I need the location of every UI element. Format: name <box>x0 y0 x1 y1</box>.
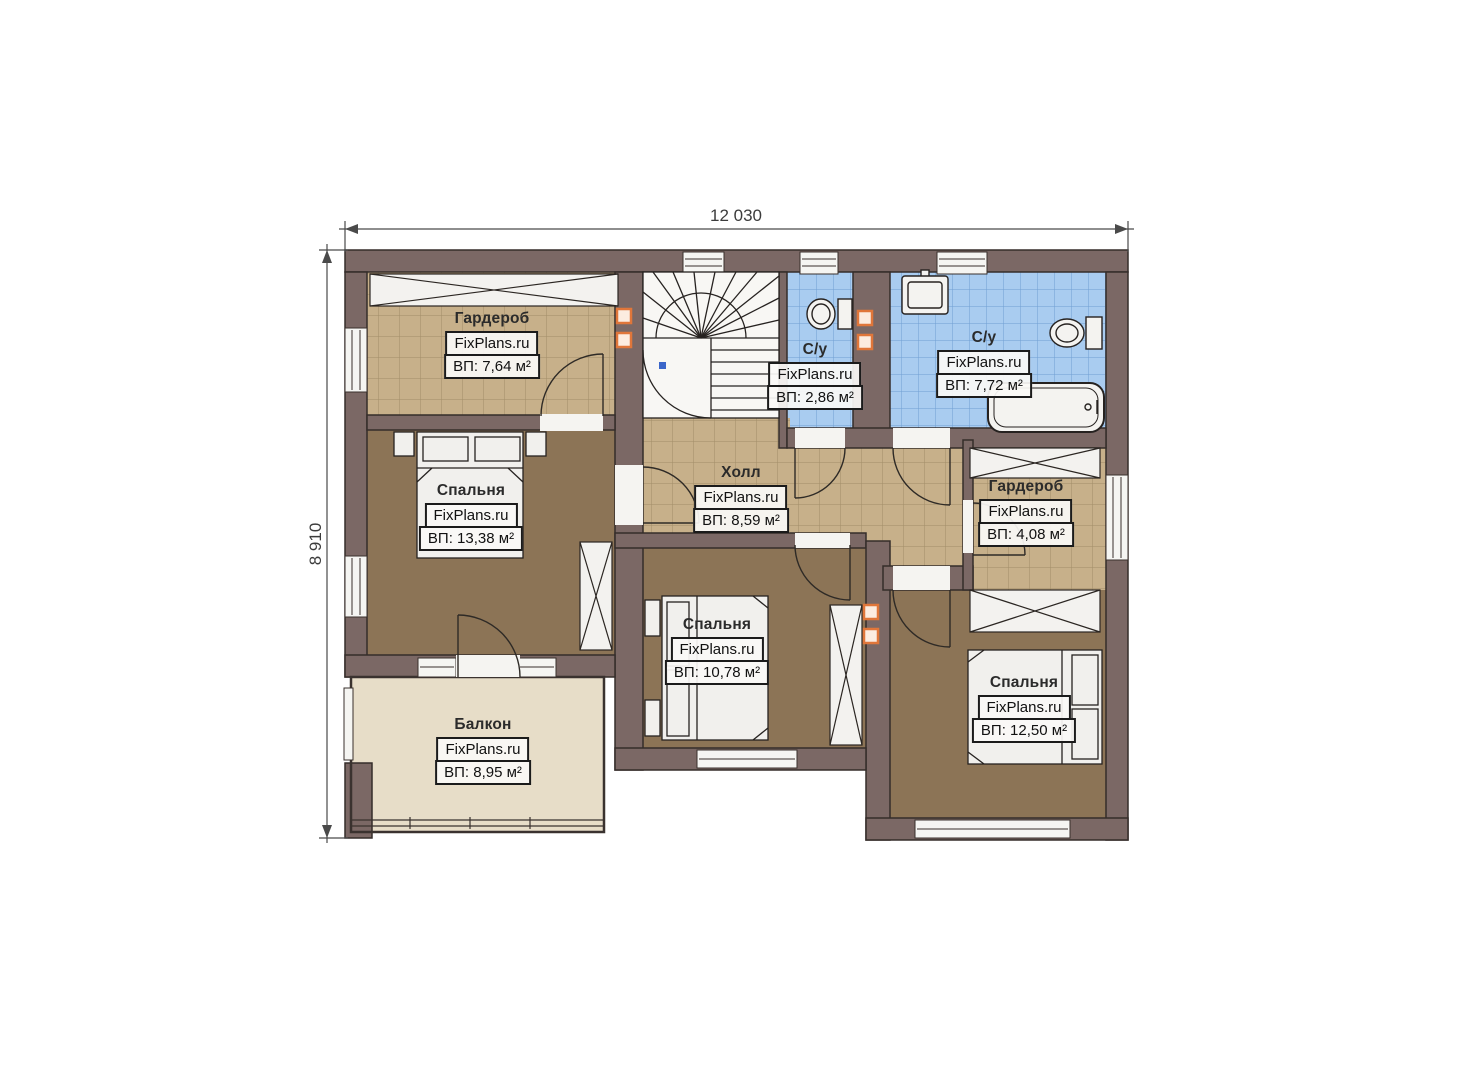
window-balcony-side <box>344 688 353 760</box>
window-bottom-right <box>915 820 1070 838</box>
staircase <box>643 272 779 418</box>
window-balcony-wall-left <box>418 658 456 677</box>
door-gap-wardrobe-tl <box>540 414 603 431</box>
closet-wardrobe-top-left <box>370 274 618 306</box>
room-name: С/у <box>936 329 1032 347</box>
nightstand <box>394 432 414 456</box>
room-name: Спальня <box>665 616 769 634</box>
room-label-bedroom-right: Спальня FixPlans.ru ВП: 12,50 м² <box>972 674 1076 743</box>
room-name: Холл <box>693 464 789 482</box>
dimension-width-label: 12 030 <box>710 206 762 226</box>
vent-icon <box>864 605 878 619</box>
watermark-box: FixPlans.ru <box>445 331 538 356</box>
room-area: ВП: 13,38 м² <box>419 526 523 551</box>
room-label-wardrobe-right: Гардероб FixPlans.ru ВП: 4,08 м² <box>978 478 1074 547</box>
window-left-upper <box>345 328 367 392</box>
window-balcony-wall-right <box>518 658 556 677</box>
vent-icon <box>858 311 872 325</box>
room-label-bathroom-small: С/у FixPlans.ru ВП: 2,86 м² <box>767 341 863 410</box>
room-area: ВП: 7,72 м² <box>936 373 1032 398</box>
door-gap-balcony <box>456 655 520 677</box>
watermark-box: FixPlans.ru <box>424 503 517 528</box>
room-name: Гардероб <box>978 478 1074 496</box>
dimension-height-label: 8 910 <box>306 523 326 566</box>
room-label-bathroom-large: С/у FixPlans.ru ВП: 7,72 м² <box>936 329 1032 398</box>
room-label-bedroom-left: Спальня FixPlans.ru ВП: 13,38 м² <box>419 482 523 551</box>
room-name: Гардероб <box>444 310 540 328</box>
pillow <box>475 437 520 461</box>
room-area: ВП: 8,95 м² <box>435 760 531 785</box>
room-name: Балкон <box>435 716 531 734</box>
watermark-box: FixPlans.ru <box>694 485 787 510</box>
door-gap-bedroom-left <box>615 465 643 525</box>
vent-icon <box>617 333 631 347</box>
wall-top <box>345 250 1128 272</box>
room-area: ВП: 8,59 м² <box>693 508 789 533</box>
door-gap-wardrobe-right <box>963 500 973 553</box>
stairs-marker <box>659 362 666 369</box>
window-left-lower <box>345 556 367 617</box>
watermark-box: FixPlans.ru <box>977 695 1070 720</box>
room-name: С/у <box>767 341 863 359</box>
room-area: ВП: 4,08 м² <box>978 522 1074 547</box>
watermark-box: FixPlans.ru <box>979 499 1072 524</box>
window-bottom-middle <box>697 750 797 768</box>
pillow <box>423 437 468 461</box>
closet-bedroom-left <box>580 542 612 650</box>
watermark-box: FixPlans.ru <box>768 362 861 387</box>
door-gap-bath-large <box>893 428 950 448</box>
window-top-bath-small <box>800 252 838 274</box>
room-area: ВП: 10,78 м² <box>665 660 769 685</box>
closet-wardrobe-right <box>970 448 1100 478</box>
room-label-bedroom-middle: Спальня FixPlans.ru ВП: 10,78 м² <box>665 616 769 685</box>
watermark-box: FixPlans.ru <box>937 350 1030 375</box>
door-gap-bedroom-middle <box>795 533 850 548</box>
room-label-hall: Холл FixPlans.ru ВП: 8,59 м² <box>693 464 789 533</box>
window-top-bath-large <box>937 252 987 274</box>
nightstand <box>526 432 546 456</box>
toilet-icon-small-bath <box>807 299 852 329</box>
room-area: ВП: 7,64 м² <box>444 354 540 379</box>
sink-icon <box>902 270 948 314</box>
window-right-wardrobe <box>1106 475 1128 560</box>
closet-bedroom-right <box>970 590 1100 632</box>
wall-balcony-pier <box>345 763 372 838</box>
room-label-balcony: Балкон FixPlans.ru ВП: 8,95 м² <box>435 716 531 785</box>
toilet-icon-large-bath <box>1050 317 1102 349</box>
window-top-stairs <box>683 252 724 274</box>
room-area: ВП: 2,86 м² <box>767 385 863 410</box>
room-label-wardrobe-top-left: Гардероб FixPlans.ru ВП: 7,64 м² <box>444 310 540 379</box>
door-gap-bedroom-right <box>893 566 950 590</box>
nightstand <box>645 600 660 636</box>
vent-icon <box>864 629 878 643</box>
room-name: Спальня <box>419 482 523 500</box>
closet-bedroom-middle <box>830 605 862 745</box>
watermark-box: FixPlans.ru <box>670 637 763 662</box>
watermark-box: FixPlans.ru <box>436 737 529 762</box>
floor-plan-drawing <box>0 0 1473 1080</box>
door-gap-bath-small <box>795 428 845 448</box>
floor-plan-page: 12 030 8 910 Гардероб FixPlans.ru ВП: 7,… <box>0 0 1473 1080</box>
room-area: ВП: 12,50 м² <box>972 718 1076 743</box>
room-name: Спальня <box>972 674 1076 692</box>
vent-icon <box>617 309 631 323</box>
nightstand <box>645 700 660 736</box>
